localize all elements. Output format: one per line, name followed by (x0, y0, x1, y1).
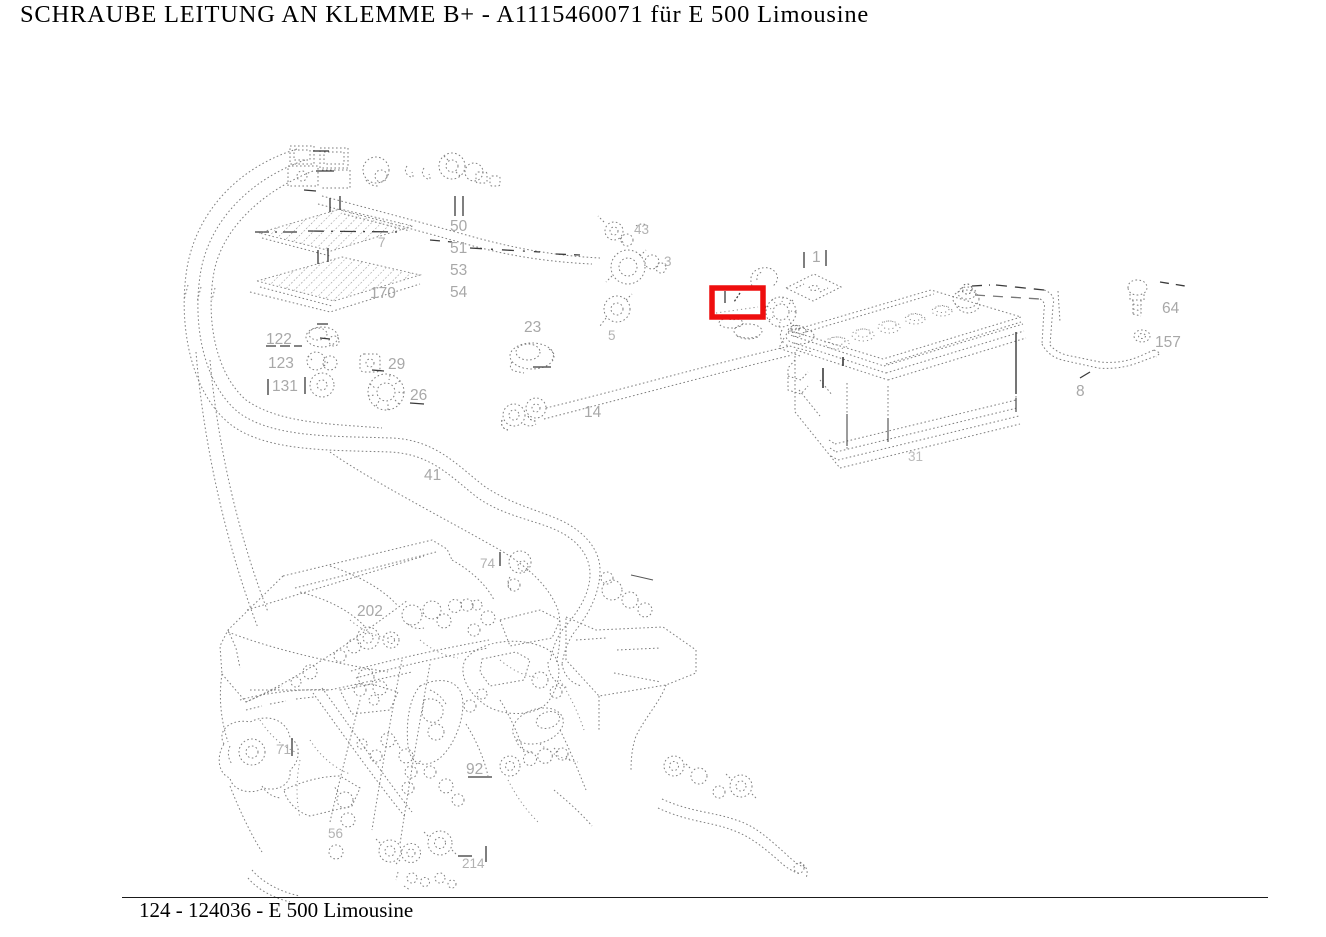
svg-text:170: 170 (370, 285, 396, 302)
svg-text:50: 50 (450, 218, 468, 235)
svg-text:54: 54 (450, 284, 468, 301)
svg-text:1: 1 (812, 249, 821, 266)
svg-text:26: 26 (410, 387, 427, 404)
svg-text:8: 8 (1076, 383, 1085, 400)
svg-text:56: 56 (328, 826, 343, 841)
svg-text:51: 51 (450, 240, 467, 257)
svg-text:31: 31 (908, 449, 923, 464)
svg-text:43: 43 (634, 222, 649, 237)
svg-text:29: 29 (388, 356, 405, 373)
svg-text:23: 23 (524, 319, 541, 336)
svg-text:214: 214 (462, 856, 485, 871)
svg-text:5: 5 (608, 328, 616, 343)
svg-text:41: 41 (424, 467, 441, 484)
svg-text:92: 92 (466, 761, 483, 778)
svg-text:157: 157 (1155, 334, 1181, 351)
svg-text:74: 74 (480, 556, 496, 571)
svg-text:202: 202 (357, 603, 383, 620)
svg-text:7: 7 (378, 235, 386, 250)
svg-text:123: 123 (268, 355, 294, 372)
svg-text:131: 131 (272, 378, 298, 395)
svg-text:3: 3 (664, 254, 672, 269)
svg-text:71: 71 (276, 742, 291, 757)
svg-text:64: 64 (1162, 300, 1180, 317)
svg-text:53: 53 (450, 262, 467, 279)
svg-text:14: 14 (584, 404, 602, 421)
